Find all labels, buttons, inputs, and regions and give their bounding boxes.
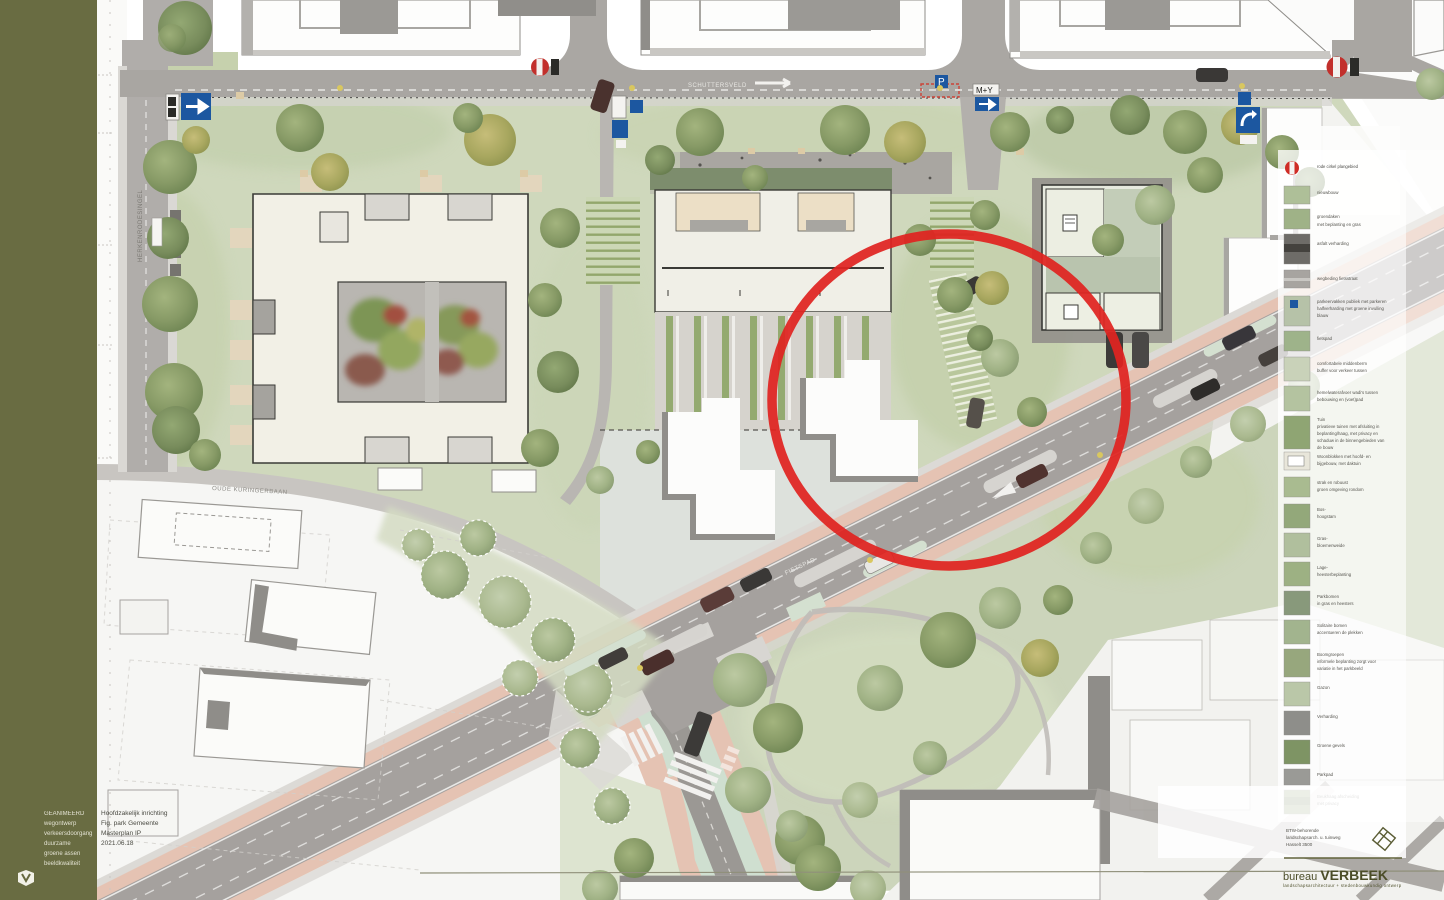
svg-text:accentueren de plekken: accentueren de plekken (1317, 630, 1363, 635)
svg-text:hemelwaterafvoer wadi's tussen: hemelwaterafvoer wadi's tussen (1317, 390, 1379, 395)
svg-text:wegontwerp: wegontwerp (43, 821, 77, 827)
svg-text:Hasselt 3500: Hasselt 3500 (1286, 842, 1313, 847)
svg-text:HERKENRODESINGEL: HERKENRODESINGEL (138, 189, 144, 262)
svg-text:met beplanting en gras: met beplanting en gras (1317, 222, 1361, 227)
svg-text:rode cirkel plangebied: rode cirkel plangebied (1317, 164, 1359, 169)
svg-text:Boomgroepen: Boomgroepen (1317, 652, 1345, 657)
svg-text:informele beplanting zorgt voo: informele beplanting zorgt voor (1317, 659, 1377, 664)
svg-text:schaduw in de binnengebieden v: schaduw in de binnengebieden van (1317, 438, 1385, 443)
svg-text:Masterplan IP: Masterplan IP (101, 830, 141, 837)
svg-text:Tuin: Tuin (1317, 417, 1326, 422)
svg-text:Solitaire bomen: Solitaire bomen (1317, 623, 1347, 628)
svg-text:hoogstam: hoogstam (1317, 514, 1336, 519)
svg-text:Woonblokken met hoofd- en: Woonblokken met hoofd- en (1317, 454, 1371, 459)
svg-text:blauw: blauw (1317, 313, 1329, 318)
svg-text:duurzame: duurzame (44, 841, 71, 847)
svg-text:Lage-: Lage- (1317, 565, 1329, 570)
svg-text:2021.06.18: 2021.06.18 (101, 840, 134, 847)
svg-text:groendaken: groendaken (1317, 214, 1340, 219)
svg-text:bebouwing en (voet)pad: bebouwing en (voet)pad (1317, 397, 1364, 402)
svg-text:landschapsarch. u. tuinweg: landschapsarch. u. tuinweg (1286, 835, 1341, 840)
svg-text:parkeervakken publiek met park: parkeervakken publiek met parkeren (1317, 299, 1387, 304)
svg-text:groen omgeving rondom: groen omgeving rondom (1317, 487, 1364, 492)
svg-text:de bouw: de bouw (1317, 445, 1334, 450)
svg-text:Verharding: Verharding (1317, 714, 1338, 719)
svg-text:variatie in het parkbeeld: variatie in het parkbeeld (1317, 666, 1363, 671)
svg-text:nieuwbouw: nieuwbouw (1317, 190, 1339, 195)
svg-text:Gazon: Gazon (1317, 685, 1330, 690)
svg-text:privatieve tuinen met afsluiti: privatieve tuinen met afsluiting in (1317, 424, 1380, 429)
svg-text:buffer voor verkeer tussen: buffer voor verkeer tussen (1317, 368, 1367, 373)
svg-text:in gras en heesters: in gras en heesters (1317, 601, 1354, 606)
svg-text:heesterbeplanting: heesterbeplanting (1317, 572, 1352, 577)
svg-text:M+Y: M+Y (976, 86, 993, 95)
svg-text:SCHUTTERSVELD: SCHUTTERSVELD (688, 83, 747, 89)
svg-text:beeldkwaliteit: beeldkwaliteit (44, 861, 80, 867)
svg-text:Bos-: Bos- (1317, 507, 1326, 512)
svg-text:groene assen: groene assen (44, 851, 80, 857)
svg-text:Fig. park Gemeente: Fig. park Gemeente (101, 820, 159, 827)
svg-text:strak en robuust: strak en robuust (1317, 480, 1349, 485)
svg-text:Groene gevels: Groene gevels (1317, 743, 1345, 748)
svg-text:fietspad: fietspad (1317, 336, 1333, 341)
svg-text:bijgebouw, met daktuin: bijgebouw, met daktuin (1317, 461, 1361, 466)
svg-text:Parkpad: Parkpad (1317, 772, 1334, 777)
svg-text:comfortabele middenberm: comfortabele middenberm (1317, 361, 1367, 366)
svg-text:wegbeding fietsstraat: wegbeding fietsstraat (1317, 276, 1358, 281)
svg-text:beplanting/haag, met privacy e: beplanting/haag, met privacy en (1317, 431, 1379, 436)
svg-text:bloemenweide: bloemenweide (1317, 543, 1345, 548)
svg-text:Hoofdzakelijk inrichting: Hoofdzakelijk inrichting (101, 810, 168, 817)
svg-text:Gras-: Gras- (1317, 536, 1328, 541)
svg-text:landschapsarchitectuur + stede: landschapsarchitectuur + stedenbouwkundi… (1283, 883, 1402, 888)
svg-text:BTW-behorende: BTW-behorende (1286, 828, 1319, 833)
svg-text:asfalt verharding: asfalt verharding (1317, 241, 1349, 246)
svg-text:GEANIMEERD: GEANIMEERD (44, 811, 85, 817)
svg-text:verkeersdoorgang: verkeersdoorgang (44, 831, 92, 837)
svg-text:halfverharding met groene invu: halfverharding met groene invulling (1317, 306, 1384, 311)
svg-text:Parkbomen: Parkbomen (1317, 594, 1340, 599)
